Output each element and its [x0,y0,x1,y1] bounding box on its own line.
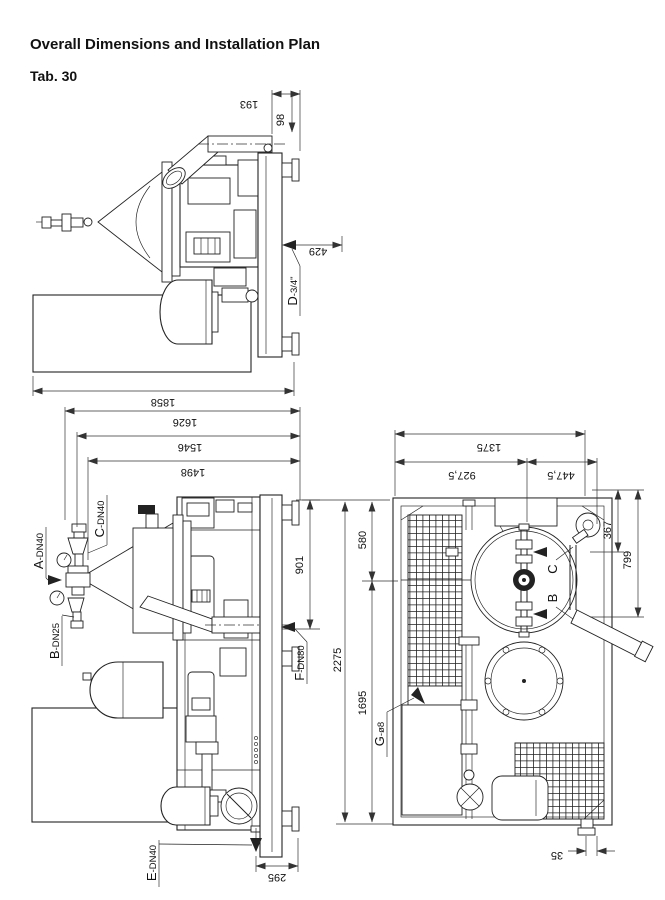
svg-text:429: 429 [309,245,327,257]
front-view-rotated: 1626 1546 1498 901 [31,407,320,887]
svg-text:1858: 1858 [151,396,175,408]
dim-2275: 2275 [302,500,393,824]
port-a-arrow [48,575,62,585]
svg-text:1375: 1375 [477,441,501,453]
svg-text:G-ø8: G-ø8 [372,722,387,746]
svg-text:D-3/4": D-3/4" [285,276,300,305]
svg-text:1626: 1626 [173,416,197,428]
machine-foot [282,159,299,181]
svg-text:A-DN40: A-DN40 [31,533,46,569]
svg-text:2275: 2275 [332,648,344,672]
plan-view: G-ø8 C B 1375 9 [302,430,653,861]
port-d-arrow [282,240,296,250]
dim-580: 580 [357,502,398,581]
port-e-label: E-DN40 [144,828,262,887]
dim-1695: 1695 [357,581,372,822]
machine-foot [282,807,299,831]
svg-text:C-DN40: C-DN40 [92,501,107,538]
cone-tip-valve [36,214,92,231]
svg-text:927,5: 927,5 [448,469,476,481]
port-a-label: A-DN40 [31,527,62,585]
svg-text:447,5: 447,5 [547,469,575,481]
svg-text:B: B [545,594,560,603]
motor [160,280,218,344]
svg-text:B-DN25: B-DN25 [47,623,62,659]
valve-cluster [50,524,90,628]
dim-429: 429 [282,236,342,257]
svg-text:C: C [545,564,560,573]
side-view-rotated: 193 98 429 D-3/4" 1858 [33,90,342,408]
svg-text:901: 901 [294,556,306,574]
port-d-label: D-3/4" [285,249,300,316]
svg-text:193: 193 [240,98,258,110]
machine-foot [282,333,299,355]
base-plate [260,495,282,857]
inlet-box [495,498,557,526]
motor-flange-top [485,642,563,720]
dim-35: 35 [551,836,615,861]
svg-text:E-DN40: E-DN40 [144,845,159,881]
pump-top [457,784,483,810]
svg-text:295: 295 [268,871,286,883]
installation-drawing: 193 98 429 D-3/4" 1858 [0,0,665,900]
tank-plan [402,705,462,815]
svg-text:1546: 1546 [178,441,202,453]
svg-text:35: 35 [551,849,563,861]
motor-top [492,776,548,820]
svg-text:1498: 1498 [181,466,205,478]
svg-text:580: 580 [357,531,369,549]
port-f-arrow [281,622,295,632]
svg-text:367: 367 [602,521,614,539]
dim-98: 98 [275,96,292,132]
feed-pump-motor [161,787,210,825]
svg-text:98: 98 [275,114,287,126]
machine-foot [282,501,299,525]
svg-text:1695: 1695 [357,691,369,715]
port-c-label: C-DN40 [88,495,107,553]
manual-page: Overall Dimensions and Installation Plan… [0,0,665,900]
svg-text:799: 799 [622,551,634,569]
radiator-grid [408,515,462,686]
dim-1375: 1375 [395,430,585,496]
base-plate [258,144,282,357]
port-b-label: B-DN25 [47,615,74,666]
